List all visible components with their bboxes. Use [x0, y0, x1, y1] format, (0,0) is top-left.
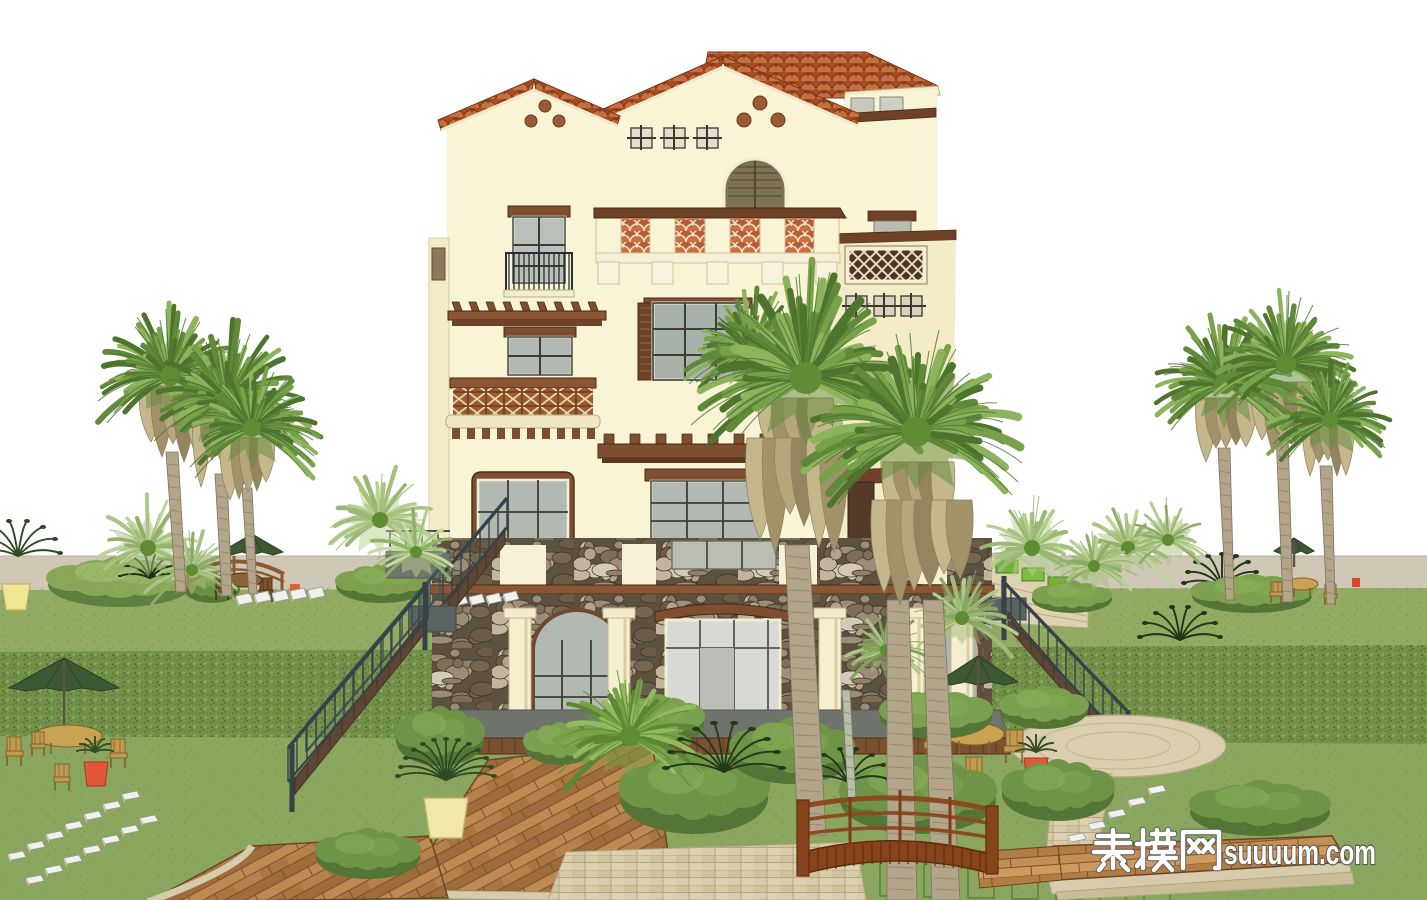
- svg-text:suuuum.com: suuuum.com: [1224, 834, 1376, 872]
